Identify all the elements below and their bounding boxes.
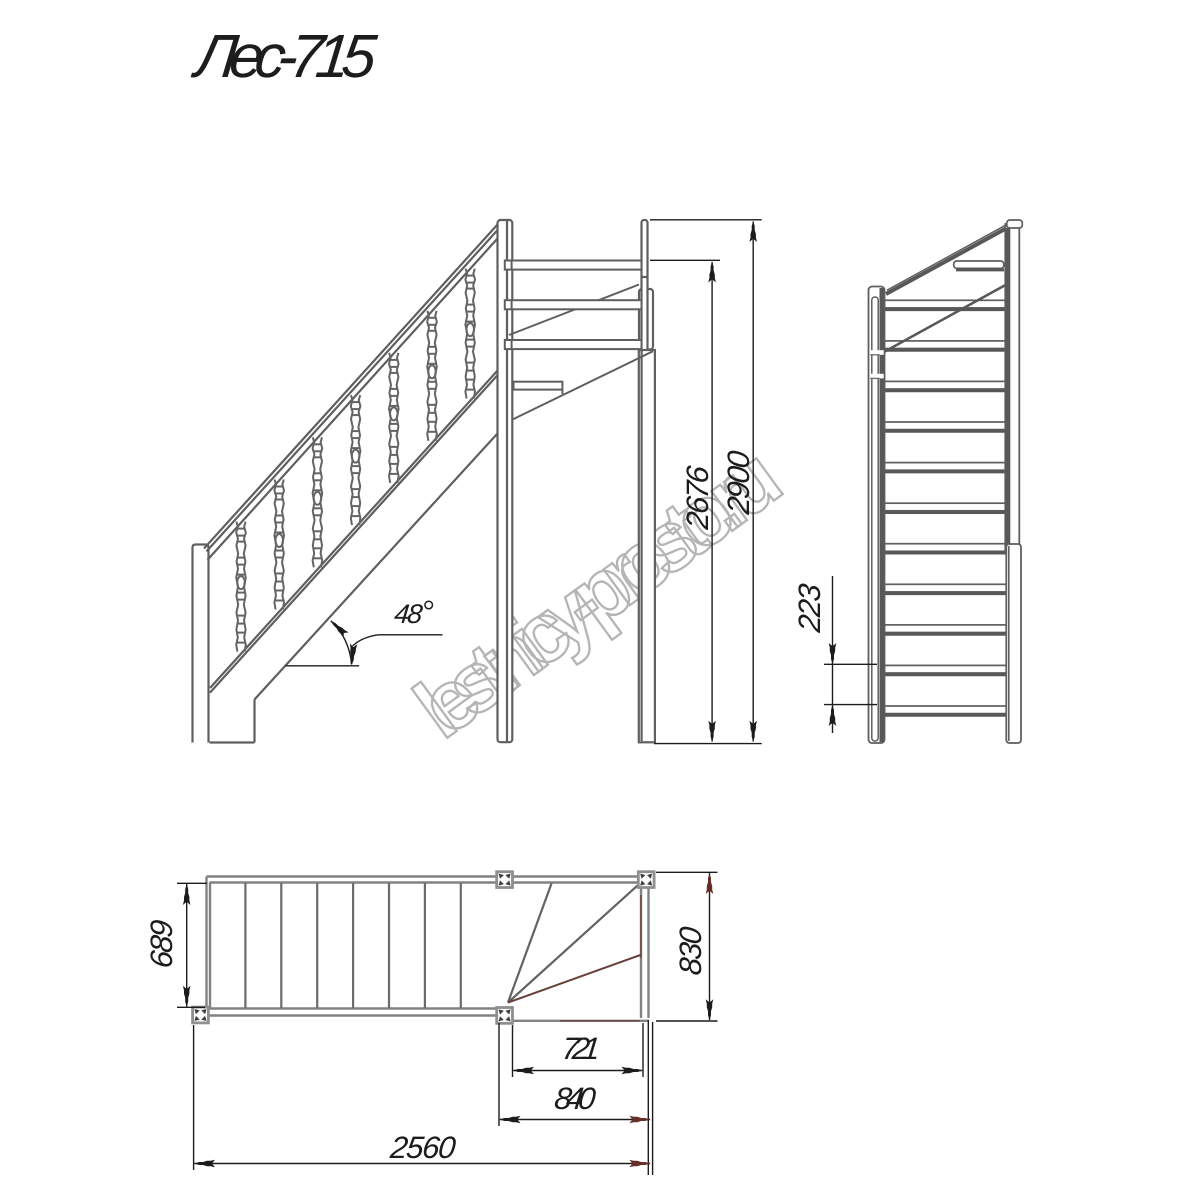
svg-text:2900: 2900 bbox=[721, 448, 756, 516]
svg-text:830: 830 bbox=[673, 924, 708, 976]
svg-text:689: 689 bbox=[144, 918, 179, 970]
svg-text:2560: 2560 bbox=[388, 1130, 458, 1165]
svg-text:48: 48 bbox=[393, 598, 424, 629]
svg-text:721: 721 bbox=[560, 1031, 602, 1066]
svg-text:Лес-715: Лес-715 bbox=[189, 22, 381, 90]
svg-text:2676: 2676 bbox=[680, 463, 715, 531]
svg-text:840: 840 bbox=[553, 1081, 598, 1116]
svg-text:223: 223 bbox=[792, 581, 827, 634]
